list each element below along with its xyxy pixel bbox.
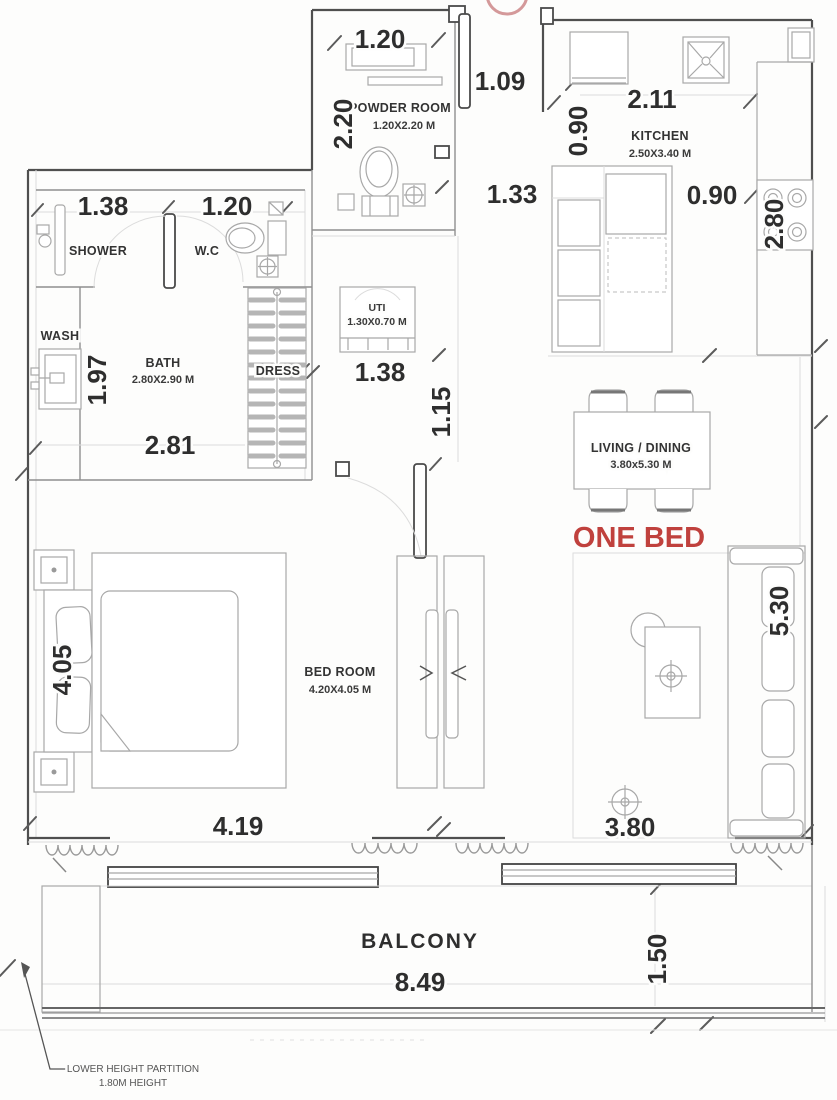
powder-shelf <box>368 77 442 85</box>
kitchen-island <box>552 166 672 352</box>
window-sill-left <box>108 867 378 887</box>
corner-cabinet <box>788 28 814 62</box>
floor-plan-canvas: POWDER ROOM 1.20X2.20 M KITCHEN 2.50X3.4… <box>0 0 837 1100</box>
powder-room-label: POWDER ROOM <box>349 101 451 115</box>
living-dining-size: 3.80x5.30 M <box>610 459 671 471</box>
dim-uti-width: 1.38 <box>355 357 406 387</box>
kitchen-fixtures <box>552 28 814 355</box>
powder-floor-drain <box>403 184 425 206</box>
bedroom-door-stub <box>336 462 349 476</box>
note-line1: LOWER HEIGHT PARTITION <box>67 1064 199 1075</box>
dim-kitchen-width: 2.11 <box>627 84 676 114</box>
dim-balcony-depth: 1.50 <box>642 934 672 985</box>
dim-shower-width: 1.38 <box>78 191 129 221</box>
nightstand-bottom <box>34 752 74 792</box>
dim-entry-door: 1.09 <box>475 66 526 96</box>
dress-wardrobe <box>248 288 306 468</box>
sliding-leaf-left <box>426 610 438 738</box>
bed <box>44 553 286 788</box>
living-dining-label: LIVING / DINING <box>591 441 691 455</box>
shower-label: SHOWER <box>69 244 127 258</box>
floor-plan-drawing: POWDER ROOM 1.20X2.20 M KITCHEN 2.50X3.4… <box>0 0 837 1100</box>
coffee-table <box>645 627 700 718</box>
shower-fixture <box>37 205 65 275</box>
kitchen-label: KITCHEN <box>631 129 689 143</box>
dim-corridor-width: 1.15 <box>426 387 456 438</box>
sliding-leaf-right <box>446 610 458 738</box>
wash-basin <box>31 349 81 409</box>
lower-height-partition <box>42 886 100 1012</box>
bath-door-leaf <box>164 214 175 288</box>
balcony-label: BALCONY <box>361 930 479 953</box>
note-line2: 1.80M HEIGHT <box>99 1078 167 1089</box>
dim-kitchen-entry: 0.90 <box>563 106 593 157</box>
dim-bath-width: 2.81 <box>145 430 196 460</box>
dim-powder-width: 1.20 <box>355 24 406 54</box>
bedroom-size: 4.20X4.05 M <box>309 684 371 696</box>
sliding-partition <box>397 556 484 788</box>
powder-toilet <box>360 147 398 216</box>
dress-label: DRESS <box>256 364 301 378</box>
note-leader <box>21 962 72 1069</box>
window-sill-right <box>502 864 736 884</box>
balcony-railing <box>0 1008 837 1040</box>
wash-label: WASH <box>41 329 80 343</box>
dim-powder-depth: 2.20 <box>328 99 358 150</box>
dim-wash-run: 1.97 <box>82 355 112 406</box>
uti-label: UTI <box>369 302 386 314</box>
bedroom-label: BED ROOM <box>304 665 375 679</box>
dim-living-depth: 5.30 <box>764 586 794 637</box>
bath-size: 2.80X2.90 M <box>132 374 194 386</box>
dim-bedroom-width: 4.19 <box>213 811 264 841</box>
wc-label: W.C <box>195 244 220 258</box>
kitchen-size: 2.50X3.40 M <box>629 148 691 160</box>
dim-counter-clearance: 0.90 <box>687 180 738 210</box>
dim-living-width: 3.80 <box>605 812 656 842</box>
uti-size: 1.30X0.70 M <box>347 316 407 328</box>
kitchen-sink <box>683 37 729 83</box>
wc-floor-drain <box>257 256 278 277</box>
bedroom-door-leaf <box>414 464 426 558</box>
hall-wall-stub <box>435 146 449 158</box>
fridge <box>570 32 628 84</box>
unit-type-label: ONE BED <box>573 522 705 554</box>
dim-balcony-width: 8.49 <box>395 967 446 997</box>
entry-door-leaf <box>459 14 470 108</box>
entry-marker-circle <box>487 0 527 14</box>
powder-room-size: 1.20X2.20 M <box>373 120 435 132</box>
curtain-symbols <box>46 843 803 855</box>
nightstand-top <box>34 550 74 590</box>
powder-bin <box>338 194 354 210</box>
dim-bedroom-depth: 4.05 <box>47 645 77 696</box>
kitchen-wall-stub <box>541 8 553 24</box>
dim-counter-run: 2.80 <box>759 199 789 250</box>
dim-wc-width: 1.20 <box>202 191 253 221</box>
dim-hall-width: 1.33 <box>487 179 538 209</box>
corridor-door <box>348 464 426 558</box>
bath-label: BATH <box>146 356 181 370</box>
